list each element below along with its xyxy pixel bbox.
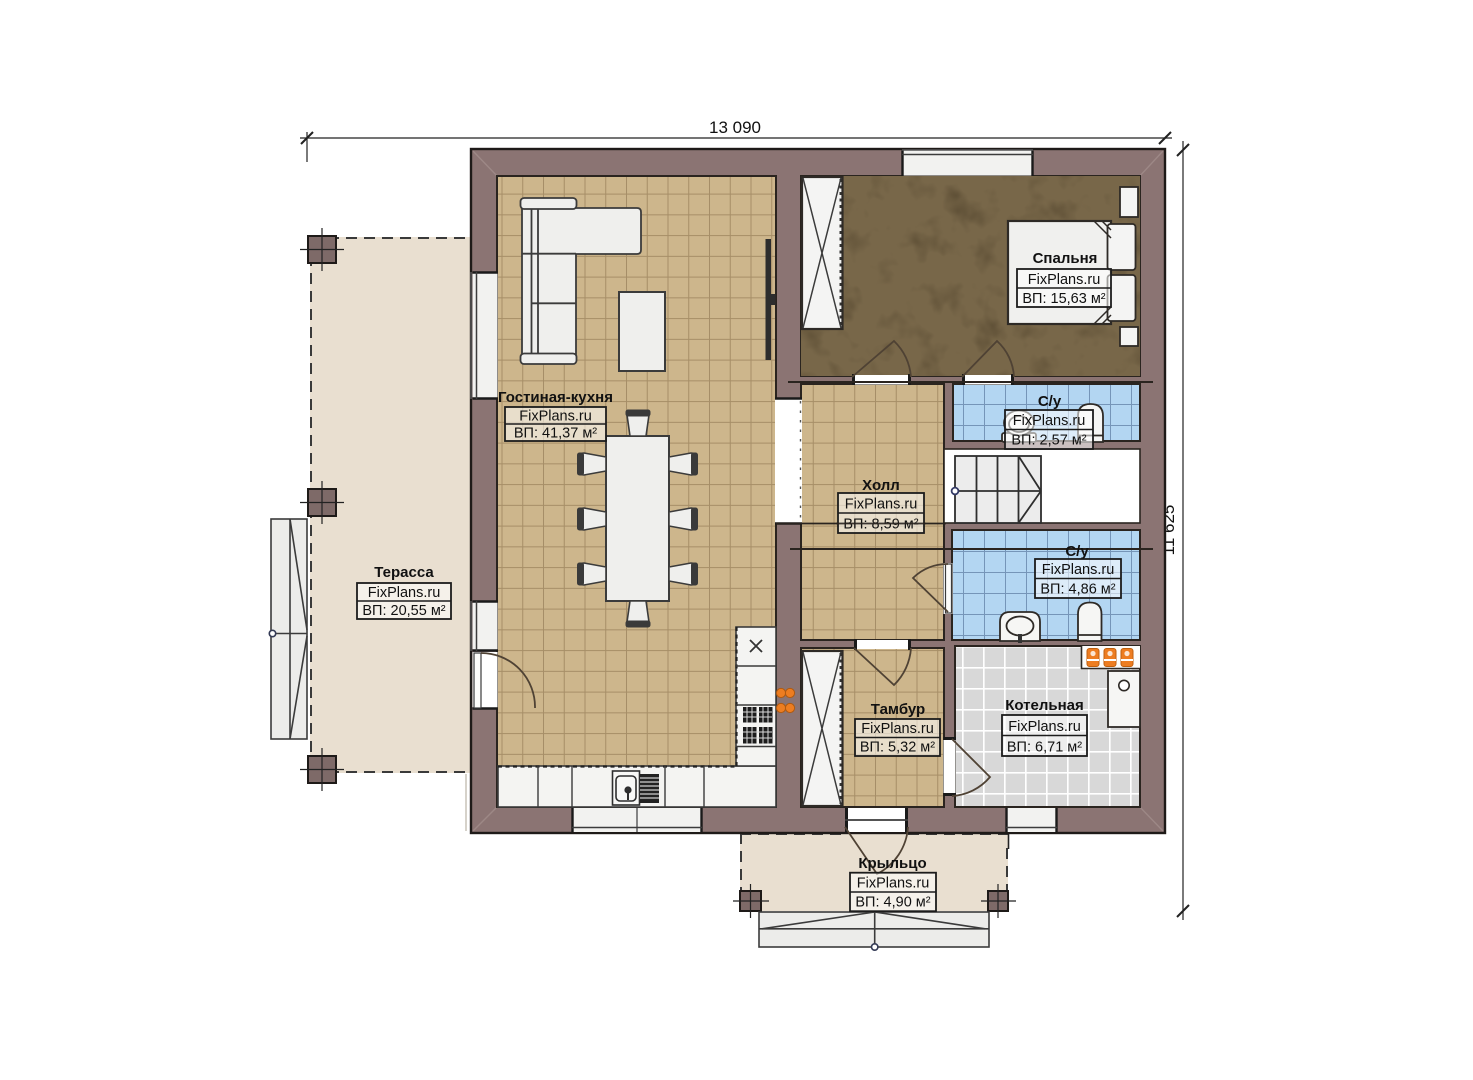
svg-text:ВП: 2,57 м²: ВП: 2,57 м² [1011, 433, 1086, 449]
svg-text:ВП: 6,71 м²: ВП: 6,71 м² [1007, 740, 1082, 756]
svg-text:ВП: 41,37 м²: ВП: 41,37 м² [514, 426, 597, 442]
svg-text:Холл: Холл [862, 477, 900, 494]
svg-text:FixPlans.ru: FixPlans.ru [1042, 562, 1115, 578]
svg-text:Терасса: Терасса [374, 564, 434, 581]
svg-text:ВП: 15,63 м²: ВП: 15,63 м² [1022, 291, 1105, 307]
svg-text:FixPlans.ru: FixPlans.ru [1028, 272, 1101, 288]
svg-text:FixPlans.ru: FixPlans.ru [519, 409, 592, 425]
svg-text:Крыльцо: Крыльцо [858, 855, 926, 872]
svg-text:FixPlans.ru: FixPlans.ru [1008, 719, 1081, 735]
svg-text:Тамбур: Тамбур [871, 701, 925, 718]
svg-text:Котельная: Котельная [1005, 697, 1084, 714]
svg-text:FixPlans.ru: FixPlans.ru [861, 721, 934, 737]
svg-text:Спальня: Спальня [1033, 250, 1098, 267]
svg-text:ВП: 20,55 м²: ВП: 20,55 м² [362, 603, 445, 619]
svg-text:Гостиная-кухня: Гостиная-кухня [498, 389, 613, 406]
svg-text:FixPlans.ru: FixPlans.ru [845, 497, 918, 513]
svg-text:FixPlans.ru: FixPlans.ru [857, 876, 930, 892]
svg-text:ВП: 4,86 м²: ВП: 4,86 м² [1040, 582, 1115, 598]
svg-text:ВП: 8,59 м²: ВП: 8,59 м² [843, 517, 918, 533]
svg-text:FixPlans.ru: FixPlans.ru [1013, 413, 1086, 429]
svg-text:FixPlans.ru: FixPlans.ru [368, 585, 441, 601]
svg-text:С/у: С/у [1065, 543, 1089, 560]
svg-text:13 090: 13 090 [709, 118, 761, 137]
svg-text:ВП: 4,90 м²: ВП: 4,90 м² [855, 895, 930, 911]
svg-text:С/у: С/у [1038, 393, 1062, 410]
svg-text:ВП: 5,32 м²: ВП: 5,32 м² [860, 740, 935, 756]
